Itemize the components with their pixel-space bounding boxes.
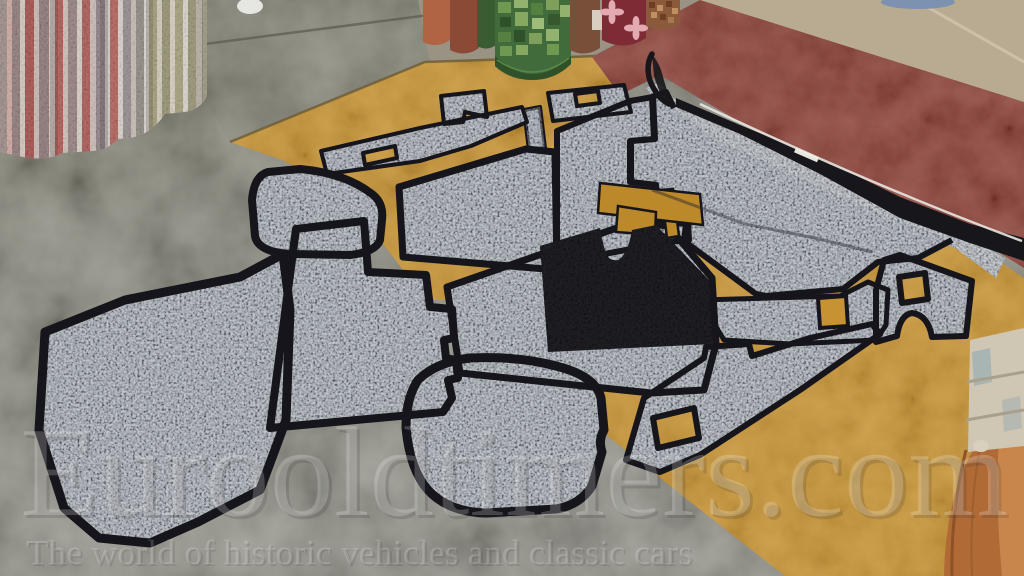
svg-text:The world of historic vehicles: The world of historic vehicles and class… [26, 533, 692, 572]
svg-text:Eurooldtimers.com: Eurooldtimers.com [20, 401, 1008, 543]
